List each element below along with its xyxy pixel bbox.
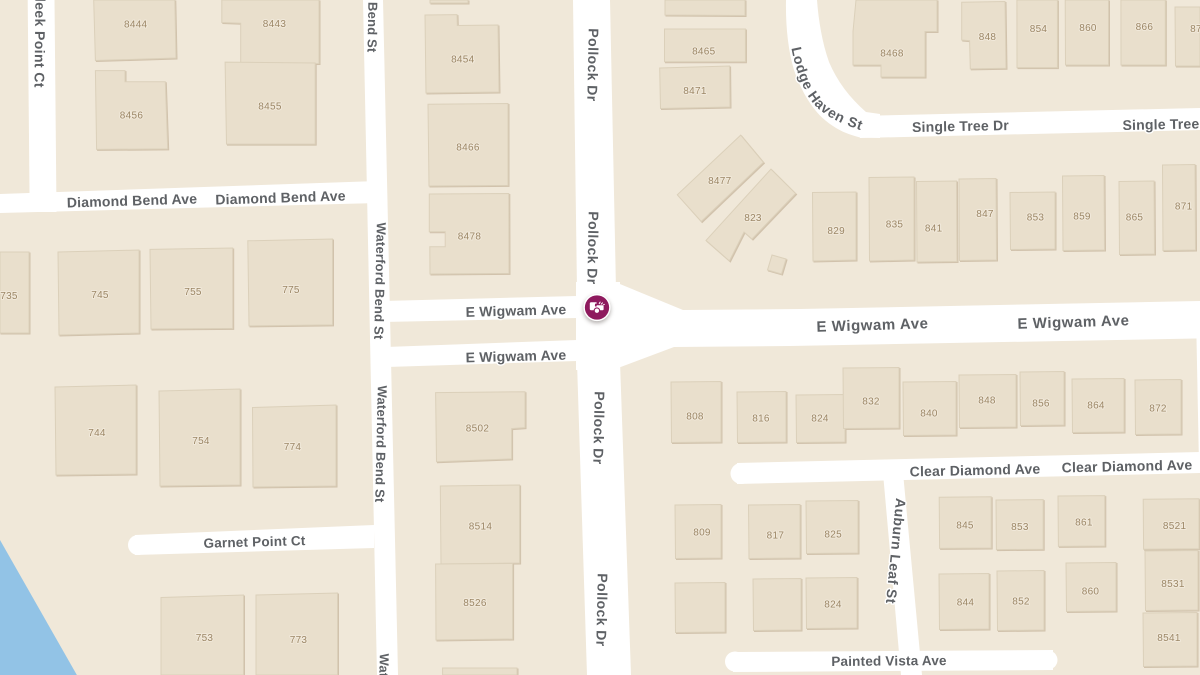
- svg-text:816: 816: [752, 414, 770, 425]
- svg-text:832: 832: [862, 397, 880, 408]
- svg-text:Painted Vista Ave: Painted Vista Ave: [831, 653, 947, 669]
- svg-text:775: 775: [282, 285, 300, 296]
- svg-text:8455: 8455: [258, 102, 282, 113]
- svg-text:840: 840: [920, 409, 938, 420]
- svg-text:865: 865: [1126, 213, 1144, 224]
- svg-text:852: 852: [1012, 597, 1030, 608]
- svg-text:824: 824: [811, 414, 829, 425]
- svg-text:848: 848: [979, 32, 997, 43]
- svg-text:823: 823: [744, 213, 762, 224]
- svg-text:Clear Diamond Ave: Clear Diamond Ave: [909, 461, 1040, 480]
- svg-text:8454: 8454: [451, 55, 475, 66]
- svg-text:755: 755: [184, 287, 202, 298]
- svg-text:8465: 8465: [692, 47, 716, 58]
- svg-text:774: 774: [284, 442, 302, 453]
- svg-text:808: 808: [686, 412, 704, 423]
- svg-text:Pollock Dr: Pollock Dr: [584, 211, 602, 285]
- svg-text:856: 856: [1032, 399, 1050, 410]
- svg-text:E Wigwam Ave: E Wigwam Ave: [465, 301, 566, 320]
- svg-text:854: 854: [1030, 24, 1048, 35]
- svg-text:E Wigwam Ave: E Wigwam Ave: [465, 347, 566, 366]
- svg-text:8521: 8521: [1163, 521, 1187, 532]
- svg-text:E Wigwam Ave: E Wigwam Ave: [816, 315, 929, 336]
- svg-text:817: 817: [767, 531, 785, 542]
- svg-text:853: 853: [1027, 213, 1045, 224]
- svg-text:754: 754: [192, 436, 210, 447]
- svg-text:Garnet Point Ct: Garnet Point Ct: [203, 533, 306, 551]
- svg-text:848: 848: [978, 396, 996, 407]
- svg-text:Single Tree Dr: Single Tree Dr: [1122, 115, 1200, 133]
- svg-text:8466: 8466: [456, 143, 480, 154]
- svg-text:E Wigwam Ave: E Wigwam Ave: [1017, 312, 1130, 333]
- svg-text:Waterford Bend St: Waterford Bend St: [374, 653, 392, 675]
- svg-text:844: 844: [957, 598, 975, 609]
- svg-text:Waterford Bend St: Waterford Bend St: [371, 222, 389, 340]
- svg-text:845: 845: [956, 521, 974, 532]
- svg-text:8444: 8444: [124, 20, 148, 31]
- svg-text:853: 853: [1011, 522, 1029, 533]
- svg-text:841: 841: [925, 224, 943, 235]
- svg-text:8468: 8468: [880, 49, 904, 60]
- svg-text:8526: 8526: [463, 598, 487, 609]
- svg-text:87: 87: [1190, 24, 1200, 35]
- svg-text:859: 859: [1073, 212, 1091, 223]
- svg-text:773: 773: [290, 635, 308, 646]
- svg-text:8456: 8456: [120, 111, 144, 122]
- svg-text:8443: 8443: [263, 19, 287, 30]
- svg-text:866: 866: [1136, 22, 1154, 33]
- svg-text:872: 872: [1149, 404, 1167, 415]
- svg-text:Sleek Point Ct: Sleek Point Ct: [31, 0, 48, 88]
- svg-text:824: 824: [824, 600, 842, 611]
- svg-text:8471: 8471: [683, 86, 707, 97]
- svg-text:871: 871: [1175, 202, 1193, 213]
- svg-text:735: 735: [0, 291, 18, 302]
- svg-text:Pollock Dr: Pollock Dr: [584, 28, 602, 102]
- svg-text:864: 864: [1087, 401, 1105, 412]
- svg-text:809: 809: [693, 528, 711, 539]
- svg-text:8502: 8502: [466, 424, 490, 435]
- svg-text:860: 860: [1079, 23, 1097, 34]
- svg-text:Waterford Bend St: Waterford Bend St: [372, 385, 390, 503]
- svg-text:8514: 8514: [469, 522, 493, 533]
- svg-text:825: 825: [824, 530, 842, 541]
- svg-text:Single Tree Dr: Single Tree Dr: [912, 117, 1010, 135]
- svg-text:829: 829: [827, 226, 845, 237]
- svg-text:8478: 8478: [458, 232, 482, 243]
- svg-text:8531: 8531: [1161, 579, 1185, 590]
- svg-text:861: 861: [1075, 518, 1093, 529]
- svg-text:753: 753: [196, 633, 214, 644]
- svg-text:835: 835: [886, 220, 904, 231]
- svg-text:Waterford Bend St: Waterford Bend St: [364, 0, 381, 53]
- svg-text:Pollock Dr: Pollock Dr: [593, 573, 611, 647]
- svg-text:847: 847: [976, 209, 994, 220]
- svg-text:Pollock Dr: Pollock Dr: [590, 391, 608, 465]
- svg-text:8477: 8477: [708, 176, 732, 187]
- svg-text:8541: 8541: [1157, 633, 1181, 644]
- svg-text:745: 745: [91, 290, 109, 301]
- svg-text:744: 744: [88, 428, 106, 439]
- svg-text:Clear Diamond Ave: Clear Diamond Ave: [1061, 457, 1192, 476]
- svg-text:860: 860: [1082, 587, 1100, 598]
